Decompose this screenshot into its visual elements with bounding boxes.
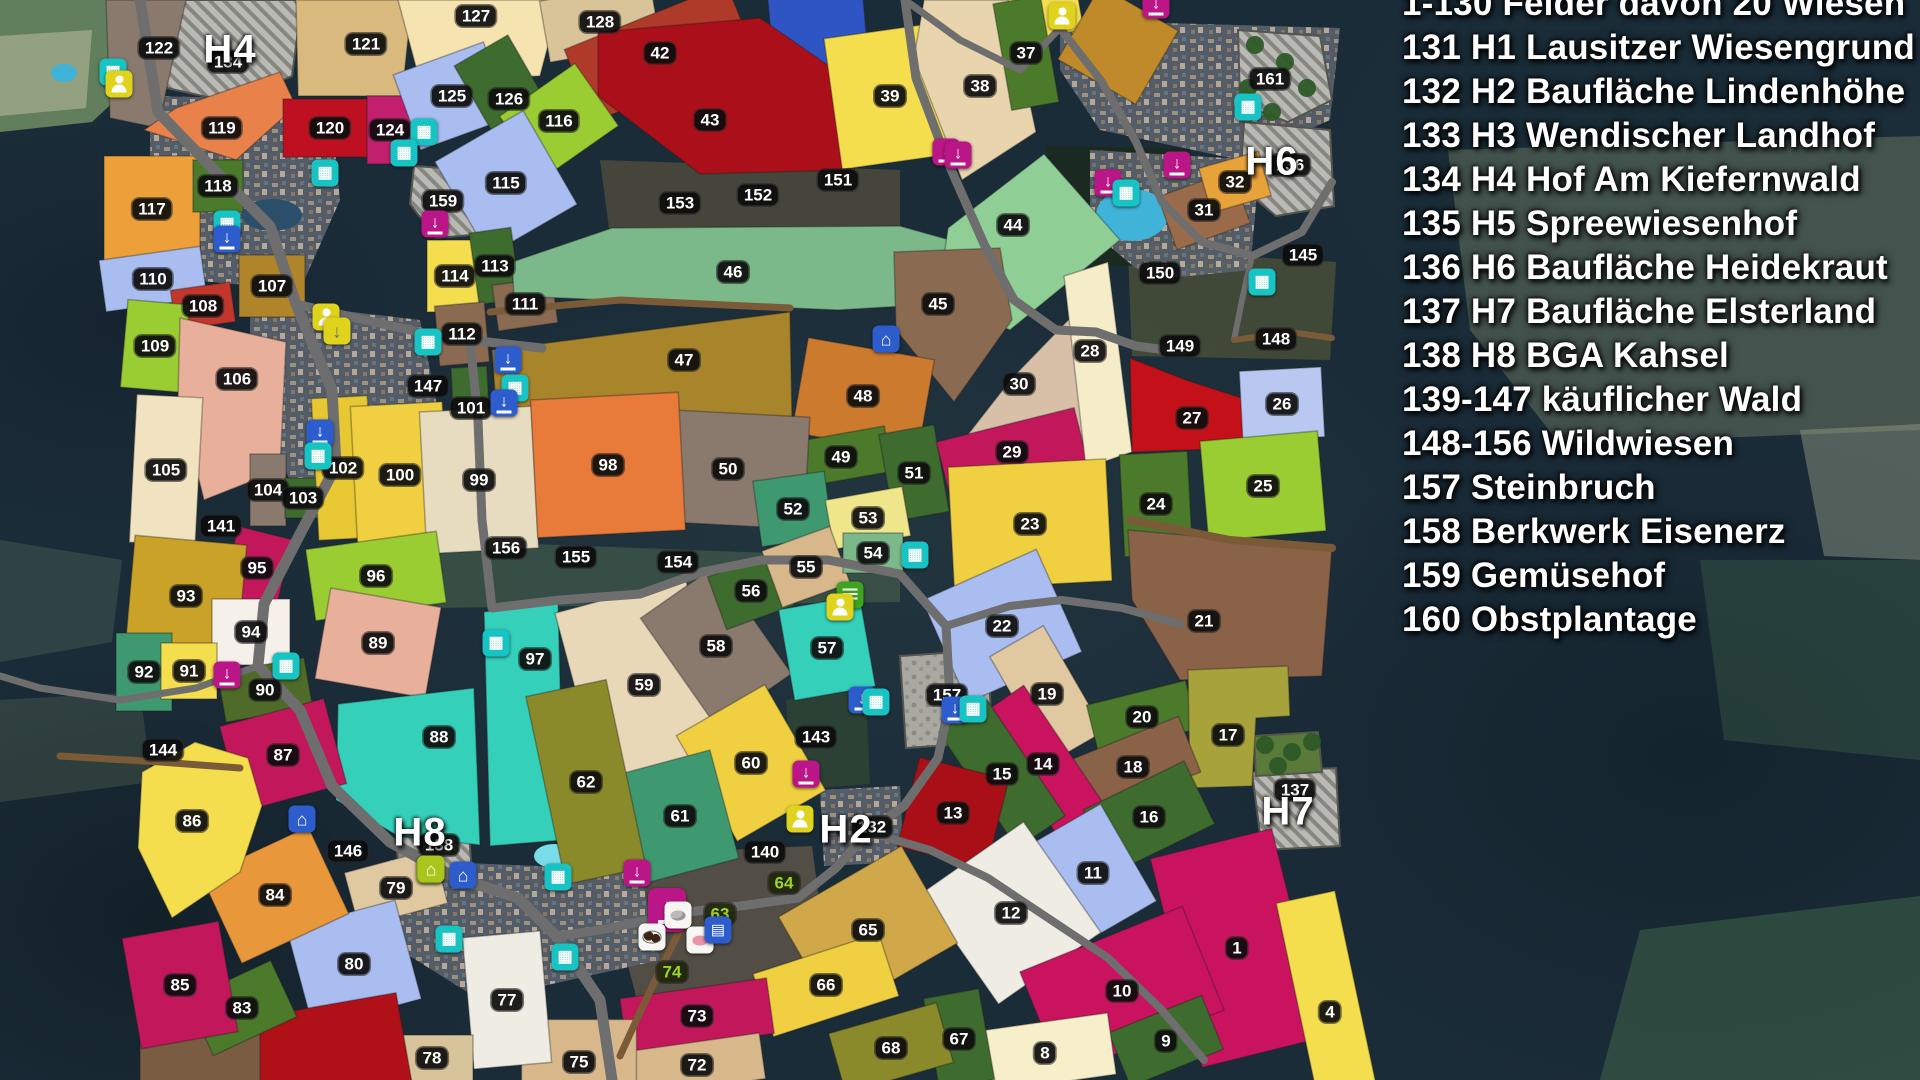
field-number-badge: 108 [183, 296, 223, 317]
factory-icon [902, 542, 929, 569]
field-number-badge: 115 [486, 173, 525, 194]
field-number-badge: 57 [812, 638, 843, 659]
field-number-badge: 56 [736, 581, 767, 602]
legend-line: 136 H6 Baufläche Heidekraut [1402, 246, 1915, 290]
field-number-badge: 44 [998, 215, 1029, 236]
field-number-badge: 4 [1319, 1002, 1340, 1023]
field-number-badge: 13 [938, 803, 969, 824]
legend-line: 1-130 Felder davon 20 Wiesen [1402, 0, 1915, 26]
field-number-badge: 45 [923, 294, 954, 315]
field-number-badge: 80 [339, 954, 370, 975]
area-number-badge: 161 [1250, 69, 1290, 90]
field-number-badge: 25 [1248, 476, 1279, 497]
dlm-icon [793, 761, 820, 788]
hub-label: H2 [819, 808, 872, 853]
field-number-badge: 122 [139, 38, 179, 59]
field-number-badge: 117 [132, 199, 171, 220]
dlm-icon [624, 860, 651, 887]
field-number-badge: 26 [1267, 394, 1298, 415]
field-number-badge: 91 [174, 661, 205, 682]
field-number-badge: 43 [695, 110, 726, 131]
field-number-badge: 10 [1107, 981, 1138, 1002]
field-number-badge: 79 [381, 878, 412, 899]
field-number-badge: 62 [571, 772, 602, 793]
field-number-badge: 53 [853, 508, 884, 529]
field-number-badge: 29 [997, 442, 1028, 463]
person-icon [827, 594, 854, 621]
legend-line: 134 H4 Hof Am Kiefernwald [1402, 158, 1915, 202]
factory-icon [305, 443, 332, 470]
field-number-badge: 24 [1141, 494, 1172, 515]
field-number-badge: 109 [135, 336, 175, 357]
area-number-badge: 149 [1160, 336, 1200, 357]
factory-icon [391, 140, 418, 167]
field-number-badge: 73 [682, 1006, 713, 1027]
area-number-badge: 148 [1256, 329, 1296, 350]
field-number-badge: 31 [1189, 200, 1220, 221]
area-number-badge: 151 [818, 170, 858, 191]
field-number-badge: 106 [217, 369, 257, 390]
field-number-badge: 55 [791, 557, 822, 578]
field-number-badge: 113 [475, 256, 514, 277]
hub-label: H6 [1245, 140, 1298, 185]
field-number-badge: 54 [858, 543, 889, 564]
dlm-icon [214, 662, 241, 689]
field-number-badge: 39 [875, 86, 906, 107]
field-number-badge: 125 [432, 86, 472, 107]
field-number-badge: 67 [944, 1029, 975, 1050]
field-number-badge: 68 [876, 1038, 907, 1059]
area-number-badge: 155 [556, 547, 596, 568]
sheep-icon [665, 902, 692, 929]
field-number-badge: 118 [198, 176, 237, 197]
factory-icon [483, 630, 510, 657]
field-number-badge: 47 [669, 350, 700, 371]
field-number-badge: 99 [464, 470, 495, 491]
factory-icon [863, 689, 890, 716]
dlm-icon [1143, 0, 1170, 19]
field-number-badge: 38 [965, 76, 996, 97]
area-number-badge: 153 [660, 193, 700, 214]
field-number-badge: 60 [736, 753, 767, 774]
field-number-badge: 46 [718, 262, 749, 283]
dlm-icon [945, 142, 972, 169]
field-number-badge: 23 [1015, 514, 1046, 535]
field-number-badge: 16 [1134, 807, 1165, 828]
person-icon [787, 806, 814, 833]
map-screenshot: 1221211271284243393837119120124125126116… [0, 0, 1920, 1080]
legend-line: 132 H2 Baufläche Lindenhöhe [1402, 70, 1915, 114]
factory-icon [1113, 180, 1140, 207]
shop-icon [873, 326, 900, 353]
factory-icon [1249, 269, 1276, 296]
home-icon [418, 856, 445, 883]
field-number-badge: 59 [629, 675, 660, 696]
dlb-icon [495, 347, 522, 374]
field-number-badge: 22 [987, 616, 1018, 637]
field-number-badge: 107 [252, 276, 292, 297]
factory-icon [960, 696, 987, 723]
area-number-badge: 150 [1140, 263, 1180, 284]
field-number-badge: 27 [1177, 408, 1208, 429]
field-number-badge: 1 [1226, 938, 1247, 959]
arrowy-icon [324, 318, 351, 345]
field-number-badge: 103 [283, 488, 323, 509]
field-number-badge: 90 [250, 680, 281, 701]
field-number-badge: 124 [370, 120, 410, 141]
field-number-badge: 9 [1155, 1031, 1176, 1052]
area-number-badge: 143 [796, 727, 836, 748]
field-number-badge: 77 [492, 990, 523, 1011]
field-number-badge-green: 74 [657, 962, 688, 983]
field-number-badge: 49 [826, 447, 857, 468]
factory-icon [415, 329, 442, 356]
field-number-badge: 30 [1004, 374, 1035, 395]
legend-line: 138 H8 BGA Kahsel [1402, 334, 1915, 378]
field-number-badge: 114 [435, 266, 474, 287]
dlb-icon [491, 390, 518, 417]
field-number-badge: 105 [146, 460, 186, 481]
field-number-badge: 48 [848, 386, 879, 407]
field-number-badge: 121 [346, 34, 386, 55]
hub-label: H8 [393, 811, 446, 856]
field-number-badge: 120 [310, 118, 350, 139]
field-number-badge: 21 [1189, 611, 1220, 632]
area-number-badge: 146 [328, 841, 368, 862]
dlm-icon [1164, 152, 1191, 179]
area-number-badge: 145 [1283, 245, 1323, 266]
field-number-badge: 78 [417, 1048, 448, 1069]
field-number-badge: 110 [133, 269, 172, 290]
field-number-badge: 61 [665, 806, 696, 827]
legend-line: 148-156 Wildwiesen [1402, 422, 1915, 466]
cow-icon [639, 924, 666, 951]
field-number-badge: 111 [506, 294, 545, 315]
field-number-badge: 75 [564, 1052, 595, 1073]
box-icon [705, 917, 732, 944]
shop-icon [289, 806, 316, 833]
field-number-badge: 94 [236, 622, 267, 643]
field-number-badge: 86 [177, 811, 208, 832]
field-number-badge: 50 [713, 459, 744, 480]
field-number-badge: 20 [1127, 707, 1158, 728]
legend-line: 139-147 käuflicher Wald [1402, 378, 1915, 422]
area-number-badge: 152 [738, 185, 778, 206]
field-number-badge: 116 [539, 111, 578, 132]
legend: 1-130 Felder davon 20 Wiesen 131 H1 Laus… [1402, 0, 1915, 642]
dlm-icon [422, 211, 449, 238]
field-number-badge: 95 [242, 558, 273, 579]
field-number-badge: 42 [645, 43, 676, 64]
field-number-badge: 98 [593, 455, 624, 476]
field-number-badge: 17 [1213, 725, 1244, 746]
legend-line: 131 H1 Lausitzer Wiesengrund [1402, 26, 1915, 70]
field-number-badge: 87 [268, 745, 299, 766]
area-number-badge: 156 [486, 538, 526, 559]
field-number-badge: 8 [1034, 1043, 1055, 1064]
field-number-badge: 66 [811, 975, 842, 996]
hub-label: H7 [1261, 790, 1314, 835]
factory-icon [436, 926, 463, 953]
field-number-badge: 84 [260, 885, 291, 906]
person-icon [106, 71, 133, 98]
field-number-badge-green: 64 [769, 873, 800, 894]
field-number-badge: 85 [165, 975, 196, 996]
legend-line: 133 H3 Wendischer Landhof [1402, 114, 1915, 158]
area-number-badge: 147 [408, 376, 448, 397]
area-number-badge: 154 [658, 552, 698, 573]
legend-line: 135 H5 Spreewiesenhof [1402, 202, 1915, 246]
hub-label: H4 [203, 28, 256, 73]
field-number-badge: 11 [1078, 863, 1108, 884]
field-number-badge: 19 [1032, 684, 1063, 705]
field-number-badge: 126 [489, 89, 529, 110]
field-number-badge: 93 [171, 586, 202, 607]
field-number-badge: 37 [1011, 43, 1042, 64]
legend-line: 158 Berkwerk Eisenerz [1402, 510, 1915, 554]
legend-line: 159 Gemüsehof [1402, 554, 1915, 598]
field-number-badge: 58 [701, 636, 732, 657]
field-number-badge: 127 [456, 6, 496, 27]
field-number-badge: 112 [442, 324, 481, 345]
field-number-badge: 12 [996, 903, 1027, 924]
area-number-badge: 159 [423, 191, 463, 212]
area-number-badge: 144 [143, 740, 183, 761]
field-number-badge: 83 [227, 998, 258, 1019]
field-number-badge: 88 [424, 727, 455, 748]
field-number-badge: 72 [682, 1055, 713, 1076]
field-number-badge: 96 [361, 566, 392, 587]
field-number-badge: 119 [202, 118, 241, 139]
field-number-badge: 28 [1075, 341, 1106, 362]
dlb-icon [214, 226, 241, 253]
legend-line: 157 Steinbruch [1402, 466, 1915, 510]
field-number-badge: 100 [380, 465, 420, 486]
field-number-badge: 14 [1028, 754, 1059, 775]
field-number-badge: 18 [1118, 757, 1149, 778]
factory-icon [1235, 94, 1262, 121]
field-number-badge: 51 [899, 463, 930, 484]
field-number-badge: 52 [778, 499, 809, 520]
field-number-badge: 89 [363, 633, 394, 654]
area-number-badge: 141 [201, 516, 241, 537]
field-number-badge: 128 [580, 12, 620, 33]
field-number-badge: 65 [853, 920, 884, 941]
area-number-badge: 140 [745, 842, 785, 863]
field-number-badge: 15 [987, 764, 1018, 785]
legend-line: 137 H7 Baufläche Elsterland [1402, 290, 1915, 334]
field-number-badge: 101 [451, 398, 491, 419]
factory-icon [312, 160, 339, 187]
field-number-badge: 97 [520, 649, 551, 670]
factory-icon [545, 864, 572, 891]
shop-icon [450, 862, 477, 889]
person-icon [1049, 3, 1076, 30]
factory-icon [273, 653, 300, 680]
field-number-badge: 92 [129, 662, 160, 683]
factory-icon [552, 944, 579, 971]
legend-line: 160 Obstplantage [1402, 598, 1915, 642]
